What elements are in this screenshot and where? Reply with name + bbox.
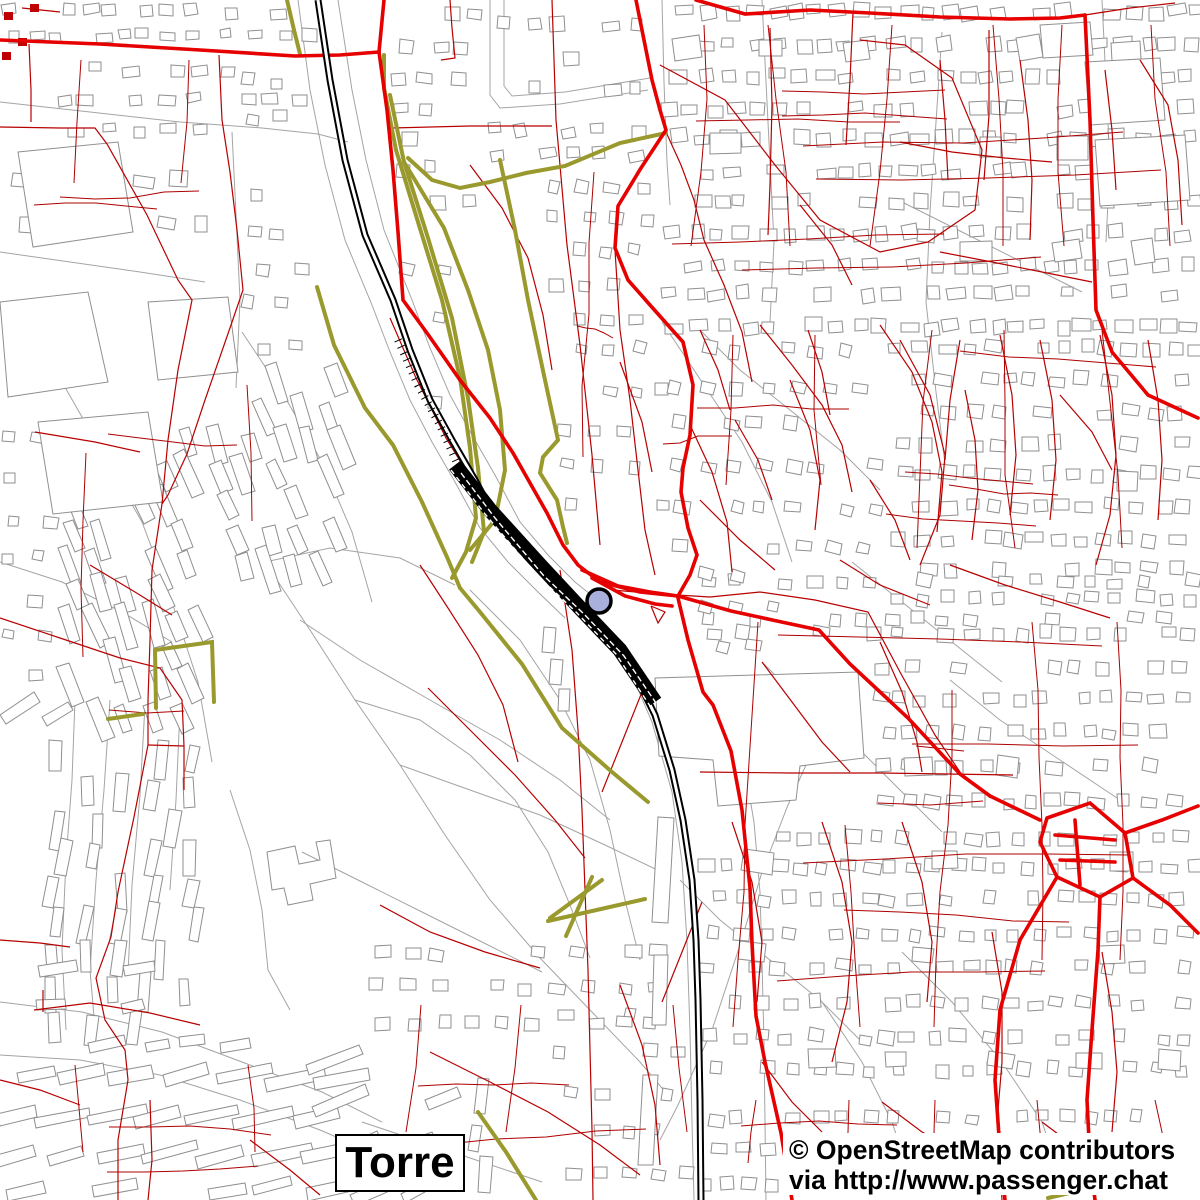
svg-text:via http://www.passenger.chat: via http://www.passenger.chat [789, 1165, 1168, 1195]
svg-text:Torre: Torre [345, 1138, 454, 1187]
svg-text:© OpenStreetMap contributors: © OpenStreetMap contributors [789, 1135, 1175, 1165]
